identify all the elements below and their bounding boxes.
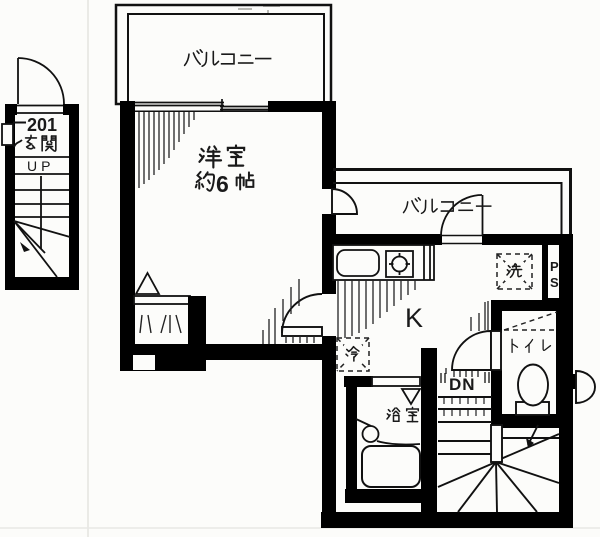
svg-text:6: 6 — [216, 171, 229, 197]
svg-text:UP: UP — [27, 158, 54, 174]
svg-text:201: 201 — [27, 115, 57, 135]
svg-text:K: K — [405, 303, 423, 333]
svg-text:P: P — [550, 259, 559, 274]
svg-text:DN: DN — [449, 375, 476, 394]
svg-text:S: S — [550, 275, 559, 290]
